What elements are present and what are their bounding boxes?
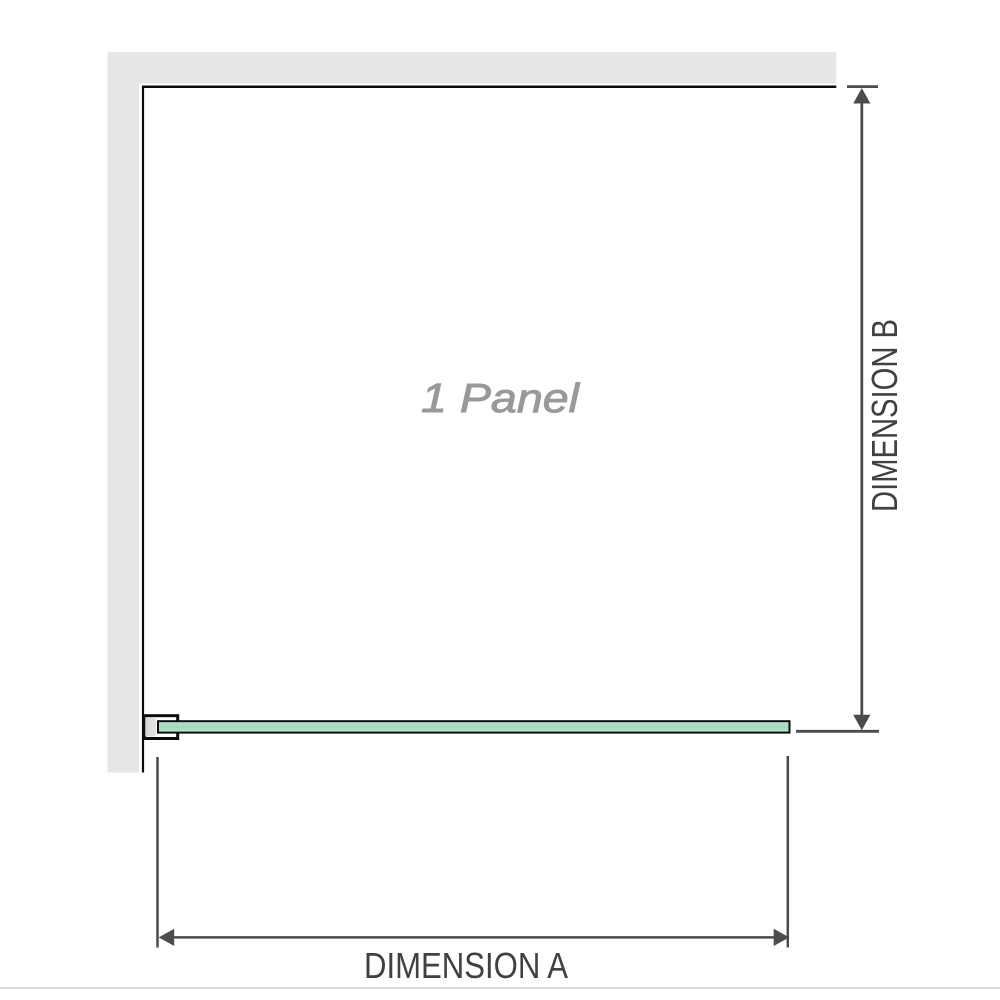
svg-text:DIMENSION A: DIMENSION A <box>364 945 568 986</box>
svg-text:DIMENSION B: DIMENSION B <box>864 319 905 512</box>
svg-text:1 Panel: 1 Panel <box>421 375 581 421</box>
